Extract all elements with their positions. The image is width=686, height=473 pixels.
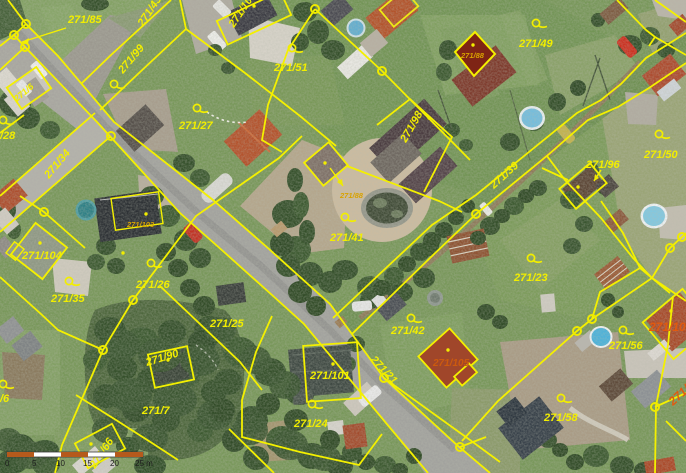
svg-text:271/27: 271/27 bbox=[178, 120, 214, 132]
svg-text:271/105: 271/105 bbox=[432, 358, 470, 369]
svg-text:271/96: 271/96 bbox=[585, 159, 621, 171]
svg-text:271/7: 271/7 bbox=[141, 405, 170, 417]
svg-text:271/51: 271/51 bbox=[273, 62, 308, 74]
svg-text:271/41: 271/41 bbox=[329, 232, 364, 244]
svg-text:25 m: 25 m bbox=[135, 459, 153, 468]
svg-text:271/49: 271/49 bbox=[518, 38, 554, 50]
svg-text:271/88: 271/88 bbox=[339, 191, 364, 200]
svg-text:271/104: 271/104 bbox=[21, 250, 62, 262]
svg-text:271/24: 271/24 bbox=[293, 418, 328, 430]
svg-text:271/85: 271/85 bbox=[67, 14, 103, 26]
svg-text:271/50: 271/50 bbox=[643, 149, 679, 161]
svg-text:271/102: 271/102 bbox=[648, 320, 686, 334]
svg-text:/6: /6 bbox=[0, 393, 10, 405]
svg-text:271/25: 271/25 bbox=[209, 318, 245, 330]
svg-text:271/35: 271/35 bbox=[50, 293, 86, 305]
svg-text:5: 5 bbox=[32, 459, 37, 468]
svg-text:271/42: 271/42 bbox=[390, 325, 425, 337]
svg-text:271/103: 271/103 bbox=[126, 220, 155, 229]
svg-text:271/26: 271/26 bbox=[135, 279, 171, 291]
svg-text:271/101: 271/101 bbox=[309, 370, 350, 382]
svg-text:/28: /28 bbox=[0, 130, 16, 142]
svg-text:271/88: 271/88 bbox=[460, 51, 485, 60]
svg-text:271/23: 271/23 bbox=[513, 272, 548, 284]
svg-text:271/58: 271/58 bbox=[543, 412, 579, 424]
svg-text:0: 0 bbox=[5, 459, 10, 468]
svg-text:15: 15 bbox=[83, 459, 92, 468]
svg-text:20: 20 bbox=[110, 459, 119, 468]
svg-text:10: 10 bbox=[56, 459, 65, 468]
svg-text:271/56: 271/56 bbox=[608, 340, 644, 352]
